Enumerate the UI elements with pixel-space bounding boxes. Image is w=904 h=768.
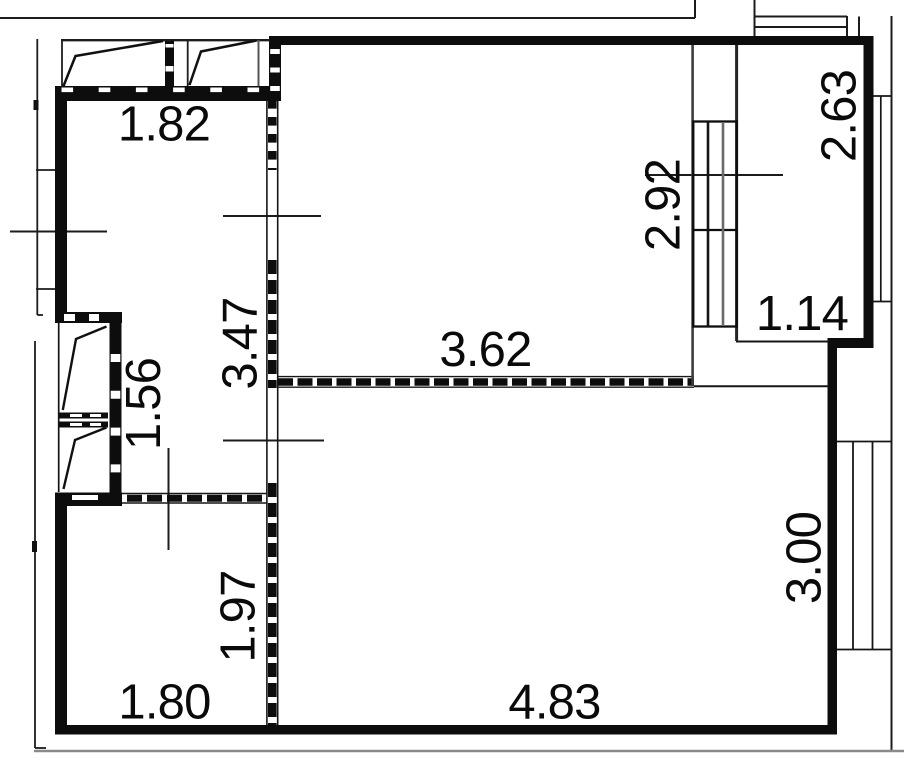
- svg-text:1.80: 1.80: [118, 676, 210, 730]
- svg-text:2.92: 2.92: [637, 159, 691, 251]
- svg-text:3.62: 3.62: [439, 323, 531, 377]
- svg-text:2.63: 2.63: [813, 70, 867, 162]
- svg-text:1.82: 1.82: [118, 98, 210, 152]
- svg-text:3.00: 3.00: [778, 512, 832, 604]
- svg-text:1.97: 1.97: [212, 570, 266, 662]
- svg-text:1.56: 1.56: [117, 358, 171, 450]
- svg-text:4.83: 4.83: [508, 676, 600, 730]
- svg-text:1.14: 1.14: [756, 287, 848, 341]
- svg-text:3.47: 3.47: [214, 297, 268, 389]
